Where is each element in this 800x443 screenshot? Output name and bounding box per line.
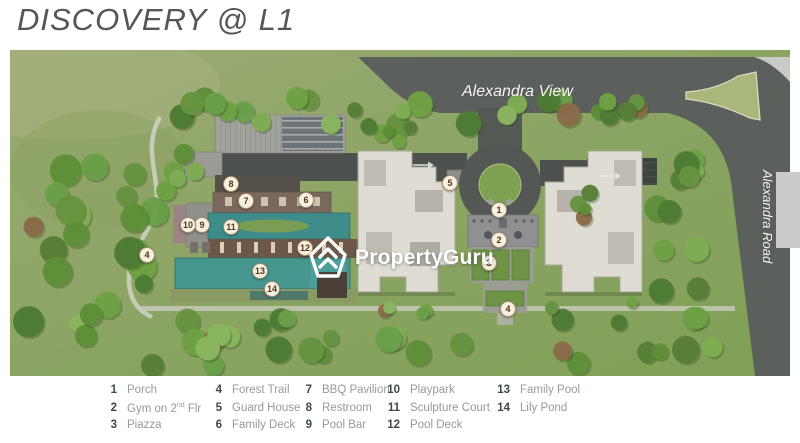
legend: 1Porch2Gym on 2nd Flr3Piazza4Forest Trai… <box>0 384 800 440</box>
legend-item-label: Family Deck <box>232 419 295 431</box>
legend-column-4: 10Playpark11Sculpture Court12Pool Deck <box>378 384 490 437</box>
legend-item-label: Porch <box>127 384 157 396</box>
map-badge-4-2: 4 <box>500 301 516 317</box>
page-title: DISCOVERY @ L1 <box>17 2 295 38</box>
legend-item-pool-deck: 12Pool Deck <box>378 419 490 437</box>
legend-item-guard-house: 5Guard House <box>200 402 300 420</box>
legend-item-label: Lily Pond <box>520 402 567 414</box>
map-badge-7: 7 <box>238 193 254 209</box>
map-badge-11: 11 <box>223 219 239 235</box>
legend-item-number: 11 <box>378 402 400 414</box>
legend-item-forest-trail: 4Forest Trail <box>200 384 300 402</box>
legend-item-number: 1 <box>95 384 117 396</box>
legend-item-label: Pool Deck <box>410 419 462 431</box>
site-plan-illustration <box>10 50 790 376</box>
legend-item-number: 13 <box>488 384 510 396</box>
map-badge-14: 14 <box>264 281 280 297</box>
legend-item-restroom: 8Restroom <box>290 402 390 420</box>
map-badge-3: 3 <box>481 255 497 271</box>
map-badge-9: 9 <box>194 217 210 233</box>
site-plan-map: Alexandra View Alexandra Road PropertyGu… <box>10 50 790 376</box>
map-badge-13: 13 <box>252 263 268 279</box>
legend-item-label: Pool Bar <box>322 419 366 431</box>
legend-item-porch: 1Porch <box>95 384 201 402</box>
legend-item-lily-pond: 14Lily Pond <box>488 402 580 420</box>
legend-item-pool-bar: 9Pool Bar <box>290 419 390 437</box>
legend-item-number: 9 <box>290 419 312 431</box>
legend-item-number: 14 <box>488 402 510 414</box>
legend-item-family-pool: 13Family Pool <box>488 384 580 402</box>
legend-item-number: 8 <box>290 402 312 414</box>
legend-item-number: 6 <box>200 419 222 431</box>
map-badge-5: 5 <box>442 175 458 191</box>
map-badge-10: 10 <box>180 217 196 233</box>
legend-item-label: Gym on 2nd Flr <box>127 402 201 415</box>
legend-item-bbq-pavilion: 7BBQ Pavilion <box>290 384 390 402</box>
legend-column-1: 1Porch2Gym on 2nd Flr3Piazza <box>95 384 201 437</box>
legend-item-label: Piazza <box>127 419 162 431</box>
map-badge-4: 4 <box>139 247 155 263</box>
legend-item-gym-on-2nd-flr: 2Gym on 2nd Flr <box>95 402 201 420</box>
legend-item-piazza: 3Piazza <box>95 419 201 437</box>
road-edge-block <box>776 172 800 248</box>
legend-item-label: Sculpture Court <box>410 402 490 414</box>
page: DISCOVERY @ L1 <box>0 0 800 443</box>
legend-item-number: 3 <box>95 419 117 431</box>
legend-item-label: Playpark <box>410 384 455 396</box>
map-badge-1: 1 <box>491 202 507 218</box>
legend-item-number: 10 <box>378 384 400 396</box>
legend-column-2: 4Forest Trail5Guard House6Family Deck <box>200 384 300 437</box>
legend-item-sculpture-court: 11Sculpture Court <box>378 402 490 420</box>
map-badge-6: 6 <box>298 192 314 208</box>
legend-item-number: 5 <box>200 402 222 414</box>
legend-item-label: Family Pool <box>520 384 580 396</box>
map-badge-8: 8 <box>223 176 239 192</box>
legend-item-number: 7 <box>290 384 312 396</box>
legend-item-number: 12 <box>378 419 400 431</box>
map-badge-12: 12 <box>297 240 313 256</box>
map-badge-2: 2 <box>491 232 507 248</box>
legend-item-number: 4 <box>200 384 222 396</box>
legend-item-playpark: 10Playpark <box>378 384 490 402</box>
legend-item-label: Forest Trail <box>232 384 290 396</box>
road-label-alexandra-road: Alexandra Road <box>760 170 775 263</box>
legend-column-5: 13Family Pool14Lily Pond <box>488 384 580 419</box>
legend-item-label: Restroom <box>322 402 372 414</box>
legend-item-number: 2 <box>95 402 117 414</box>
legend-column-3: 7BBQ Pavilion8Restroom9Pool Bar <box>290 384 390 437</box>
road-label-alexandra-view: Alexandra View <box>462 83 573 101</box>
legend-item-family-deck: 6Family Deck <box>200 419 300 437</box>
